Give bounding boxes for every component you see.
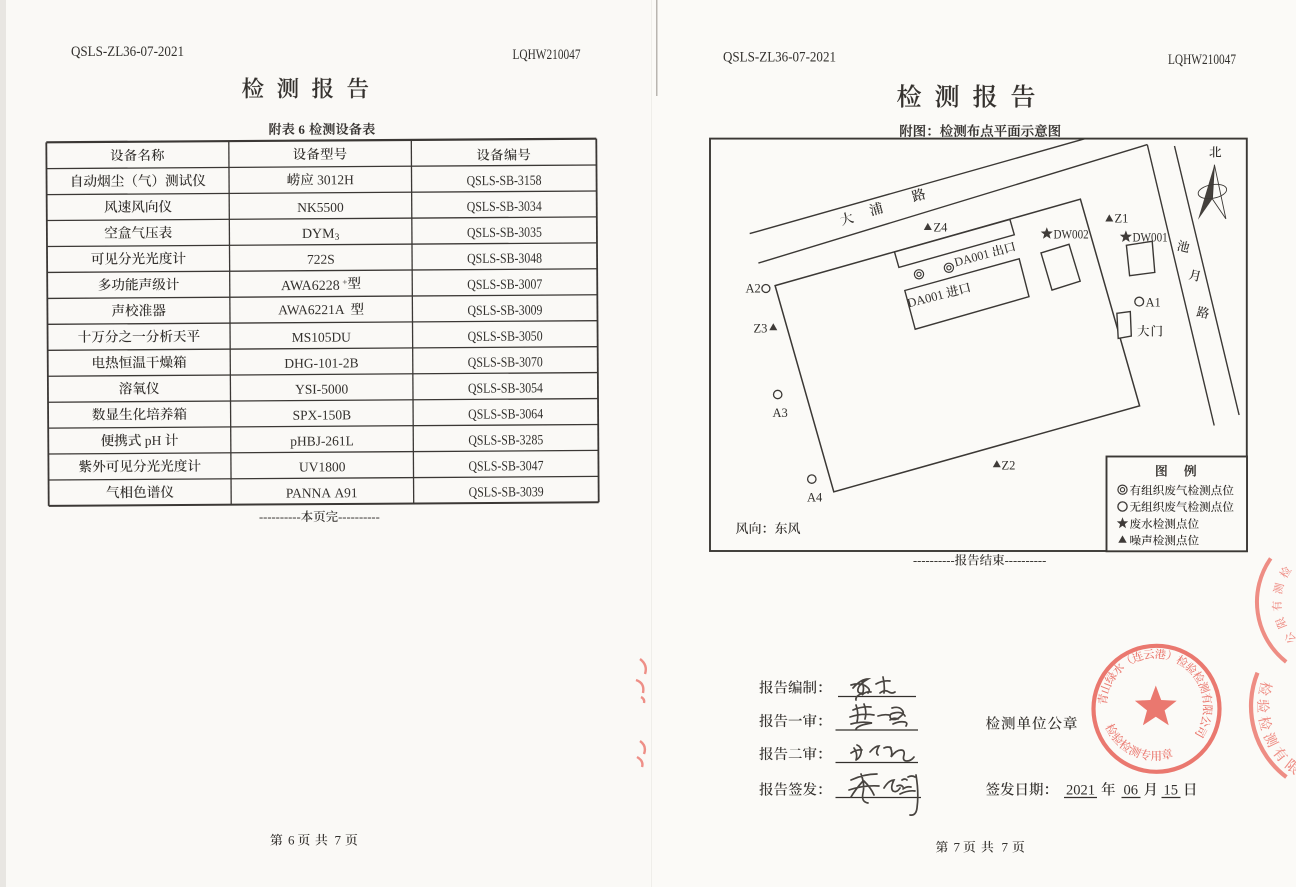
svg-text:pH: pH: [141, 433, 165, 448]
svg-text:7: 7: [954, 840, 961, 855]
svg-text:QSLS-SB-3054: QSLS-SB-3054: [468, 381, 543, 396]
svg-text:AWA6228: AWA6228: [281, 279, 340, 294]
svg-text:DHG-101-2B: DHG-101-2B: [284, 355, 358, 370]
svg-text:2021: 2021: [1066, 783, 1095, 799]
svg-text:pHBJ-261L: pHBJ-261L: [290, 433, 354, 448]
svg-text:PANNA A91: PANNA A91: [286, 485, 358, 500]
svg-text:Z3: Z3: [754, 322, 768, 336]
svg-text:UV1800: UV1800: [299, 459, 346, 474]
svg-text:A1: A1: [1146, 296, 1161, 310]
svg-text:15: 15: [1164, 783, 1179, 799]
svg-text:QSLS-SB-3285: QSLS-SB-3285: [468, 433, 543, 448]
svg-text:LQHW210047: LQHW210047: [1168, 52, 1236, 68]
svg-text:QSLS-ZL36-07-2021: QSLS-ZL36-07-2021: [723, 50, 836, 66]
svg-text:7: 7: [335, 833, 342, 848]
svg-text:Z1: Z1: [1115, 212, 1129, 226]
svg-text:A4: A4: [807, 491, 823, 505]
svg-text:722S: 722S: [307, 252, 335, 267]
svg-text:QSLS-SB-3050: QSLS-SB-3050: [468, 329, 543, 344]
svg-text:QSLS-SB-3064: QSLS-SB-3064: [468, 407, 543, 422]
svg-text:Z4: Z4: [934, 221, 949, 235]
svg-text:QSLS-SB-3035: QSLS-SB-3035: [467, 226, 542, 241]
svg-text:QSLS-ZL36-07-2021: QSLS-ZL36-07-2021: [71, 44, 184, 60]
svg-text:LQHW210047: LQHW210047: [513, 47, 581, 63]
svg-text:DW002: DW002: [1054, 228, 1089, 242]
svg-text:----------: ----------: [259, 510, 301, 524]
svg-text:06: 06: [1124, 783, 1139, 799]
svg-text:NK5500: NK5500: [297, 200, 344, 215]
svg-text:----------: ----------: [913, 554, 955, 568]
svg-text:QSLS-SB-3070: QSLS-SB-3070: [468, 355, 543, 370]
svg-text:QSLS-SB-3047: QSLS-SB-3047: [468, 459, 543, 474]
svg-text:6: 6: [288, 833, 295, 848]
svg-text:DYM: DYM: [302, 227, 335, 242]
svg-text:MS105DU: MS105DU: [292, 330, 352, 345]
svg-text:A3: A3: [773, 406, 788, 420]
svg-text:3: 3: [335, 233, 340, 243]
svg-text:SPX-150B: SPX-150B: [293, 407, 352, 422]
svg-text:QSLS-SB-3048: QSLS-SB-3048: [467, 252, 542, 267]
svg-text:QSLS-SB-3039: QSLS-SB-3039: [469, 485, 544, 500]
svg-text:YSI-5000: YSI-5000: [295, 381, 349, 396]
svg-text:6: 6: [295, 122, 308, 137]
svg-text:3012H: 3012H: [314, 172, 354, 187]
svg-text:AWA6221A: AWA6221A: [278, 302, 348, 317]
svg-text:QSLS-SB-3158: QSLS-SB-3158: [467, 174, 542, 189]
svg-text:DW001: DW001: [1133, 231, 1168, 245]
svg-text:----------: ----------: [338, 510, 380, 524]
svg-text:7: 7: [1002, 840, 1009, 855]
svg-text:QSLS-SB-3034: QSLS-SB-3034: [467, 200, 542, 215]
svg-text:----------: ----------: [1005, 554, 1047, 568]
svg-text:QSLS-SB-3007: QSLS-SB-3007: [467, 278, 542, 293]
svg-text:A2: A2: [746, 282, 761, 296]
svg-text:QSLS-SB-3009: QSLS-SB-3009: [467, 303, 542, 318]
svg-text:+: +: [342, 277, 347, 287]
svg-text:Z2: Z2: [1002, 459, 1016, 473]
